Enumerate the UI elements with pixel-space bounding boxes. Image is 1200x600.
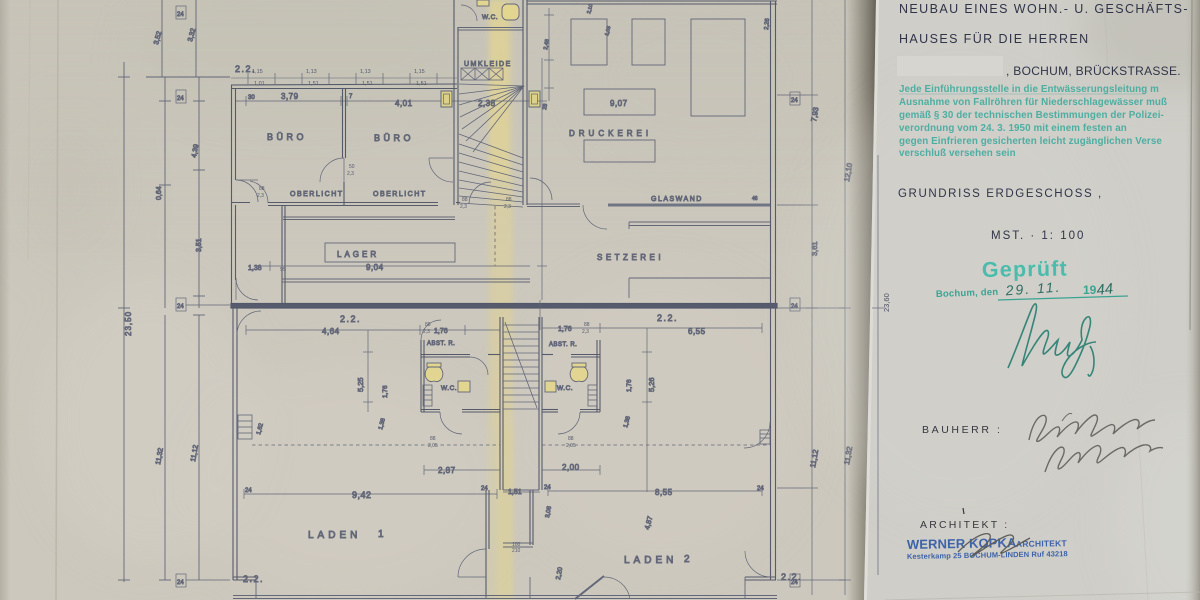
svg-text:2,26: 2,26: [764, 17, 771, 30]
svg-text:2: 2: [684, 554, 690, 565]
svg-text:1,01: 1,01: [254, 81, 265, 87]
svg-text:LAGER: LAGER: [337, 250, 379, 259]
svg-text:1,76: 1,76: [558, 326, 572, 333]
svg-text:2,3: 2,3: [460, 204, 467, 210]
svg-text:NEUBAU EINES WOHN.- U. GESC: NEUBAU EINES WOHN.- U. GESCHÄFTS-: [899, 2, 1189, 16]
svg-text:ARCHITEKT: ARCHITEKT: [1016, 538, 1068, 549]
svg-text:1,38: 1,38: [248, 265, 262, 272]
svg-text:23,50: 23,50: [124, 311, 133, 336]
svg-text:44: 44: [1096, 280, 1114, 299]
svg-text:2,3: 2,3: [504, 204, 511, 210]
svg-text:5,26: 5,26: [647, 377, 656, 392]
svg-text:MST. · 1: 100: MST. · 1: 100: [991, 230, 1085, 242]
svg-text:GLASWAND: GLASWAND: [651, 196, 703, 203]
svg-text:9,07: 9,07: [610, 99, 628, 108]
svg-text:, BOCHUM, BRÜCKSTRASSE.: , BOCHUM, BRÜCKSTRASSE.: [1006, 64, 1181, 78]
svg-text:24: 24: [177, 304, 184, 310]
svg-text:Jede Einführungsstelle in die: Jede Einführungsstelle in die Entwässeru…: [899, 84, 1159, 95]
svg-text:verschluß versehen sein: verschluß versehen sein: [899, 148, 1016, 159]
svg-text:4,64: 4,64: [322, 327, 340, 336]
svg-text:1,51: 1,51: [308, 81, 319, 87]
svg-text:8,55: 8,55: [655, 488, 673, 497]
svg-text:3,79: 3,79: [281, 92, 299, 101]
svg-text:28: 28: [542, 103, 549, 110]
svg-text:2.2.: 2.2.: [657, 313, 678, 323]
svg-text:19: 19: [1083, 283, 1097, 297]
svg-text:3,51: 3,51: [196, 238, 203, 252]
svg-text:24: 24: [757, 486, 764, 492]
svg-text:24: 24: [544, 485, 551, 491]
svg-text:2,3: 2,3: [347, 171, 354, 177]
svg-text:DRUCKEREI: DRUCKEREI: [569, 129, 652, 138]
svg-text:24: 24: [791, 98, 798, 104]
svg-text:HAUSES FÜR DIE HERREN: HAUSES FÜR DIE HERREN: [899, 32, 1090, 46]
svg-text:9,42: 9,42: [352, 490, 372, 500]
svg-text:gemäß § 30 der technischen Bes: gemäß § 30 der technischen Bestimmungen …: [899, 110, 1164, 121]
svg-text:Bochum, den: Bochum, den: [936, 287, 999, 300]
svg-text:24: 24: [177, 96, 184, 102]
svg-text:24: 24: [177, 580, 184, 586]
svg-text:2,3: 2,3: [582, 329, 589, 335]
svg-text:88: 88: [462, 197, 468, 203]
svg-text:88: 88: [584, 322, 590, 328]
svg-text:1,76: 1,76: [434, 328, 448, 335]
svg-text:BÜRO: BÜRO: [267, 132, 307, 142]
svg-text:ABST. R.: ABST. R.: [427, 341, 455, 347]
svg-text:ABST. R.: ABST. R.: [549, 342, 577, 348]
svg-text:24: 24: [791, 304, 798, 310]
svg-text:30: 30: [248, 95, 255, 101]
svg-text:1: 1: [378, 529, 384, 540]
svg-text:UMKLEIDE: UMKLEIDE: [464, 61, 512, 68]
svg-text:LADEN: LADEN: [308, 530, 361, 541]
svg-text:4,01: 4,01: [395, 99, 413, 108]
svg-text:1,51: 1,51: [362, 81, 373, 87]
svg-text:24: 24: [791, 580, 798, 586]
svg-text:W.C.: W.C.: [482, 14, 498, 21]
svg-text:88: 88: [259, 186, 265, 192]
svg-text:ARCHITEKT :: ARCHITEKT :: [920, 519, 1009, 531]
svg-text:2.2.: 2.2.: [340, 314, 361, 324]
svg-text:210: 210: [512, 548, 521, 554]
svg-text:LADEN: LADEN: [624, 555, 677, 566]
svg-text:GRUNDRISS ERDGESCHOSS ,: GRUNDRISS ERDGESCHOSS ,: [898, 188, 1103, 200]
svg-text:2,87: 2,87: [438, 466, 456, 475]
svg-text:88: 88: [425, 322, 431, 328]
svg-text:46: 46: [752, 196, 758, 202]
svg-text:OBERLICHT: OBERLICHT: [290, 191, 344, 198]
svg-text:5,25: 5,25: [356, 377, 365, 392]
svg-text:23,60: 23,60: [882, 293, 891, 312]
svg-text:2,3: 2,3: [257, 193, 264, 199]
svg-text:1,15: 1,15: [414, 69, 425, 75]
svg-text:2,05: 2,05: [566, 443, 576, 449]
svg-text:BAUHERR :: BAUHERR :: [922, 424, 1003, 436]
svg-text:9,04: 9,04: [366, 263, 384, 272]
svg-text:88: 88: [506, 197, 512, 203]
svg-text:50: 50: [349, 164, 355, 170]
svg-text:1,51: 1,51: [416, 81, 427, 87]
svg-text:Ausnahme von Fallröhren für Ni: Ausnahme von Fallröhren für Niederschlag…: [899, 97, 1167, 108]
svg-text:1,15: 1,15: [252, 69, 263, 75]
svg-text:88: 88: [568, 436, 574, 442]
svg-text:SETZEREI: SETZEREI: [597, 253, 664, 262]
svg-text:BÜRO: BÜRO: [374, 133, 414, 143]
svg-text:OBERLICHT: OBERLICHT: [373, 191, 427, 198]
svg-text:verordnung vom 24. 3. 1950 mit: verordnung vom 24. 3. 1950 mit einem fes…: [899, 123, 1127, 134]
svg-text:2.2.: 2.2.: [243, 574, 264, 584]
svg-text:88: 88: [430, 436, 436, 442]
svg-text:6,55: 6,55: [688, 327, 706, 336]
svg-text:1,13: 1,13: [306, 69, 317, 75]
svg-text:2,3: 2,3: [423, 329, 430, 335]
svg-text:24: 24: [481, 486, 488, 492]
svg-text:W.C.: W.C.: [557, 385, 573, 392]
svg-text:gegen Einfrieren gesicherten l: gegen Einfrieren gesicherten leicht zugä…: [899, 136, 1162, 147]
svg-text:0,64: 0,64: [156, 186, 163, 200]
svg-text:24: 24: [177, 12, 184, 18]
svg-text:95: 95: [280, 267, 286, 273]
svg-text:1,13: 1,13: [360, 69, 371, 75]
svg-text:1,76: 1,76: [382, 385, 389, 398]
svg-text:2,00: 2,00: [562, 463, 580, 472]
svg-text:W.C.: W.C.: [441, 385, 457, 392]
svg-text:1,76: 1,76: [626, 379, 633, 392]
svg-text:24: 24: [245, 488, 252, 494]
svg-text:2,05: 2,05: [428, 443, 438, 449]
